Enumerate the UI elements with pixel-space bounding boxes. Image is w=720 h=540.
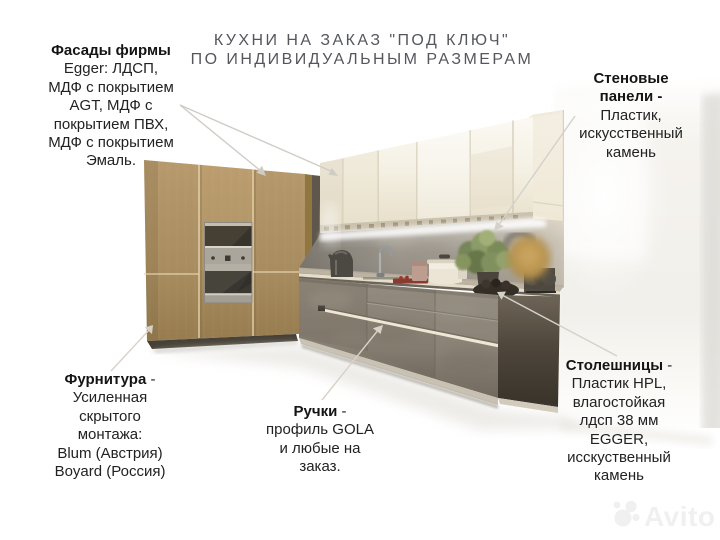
svg-text:Avito: Avito [644, 501, 715, 532]
